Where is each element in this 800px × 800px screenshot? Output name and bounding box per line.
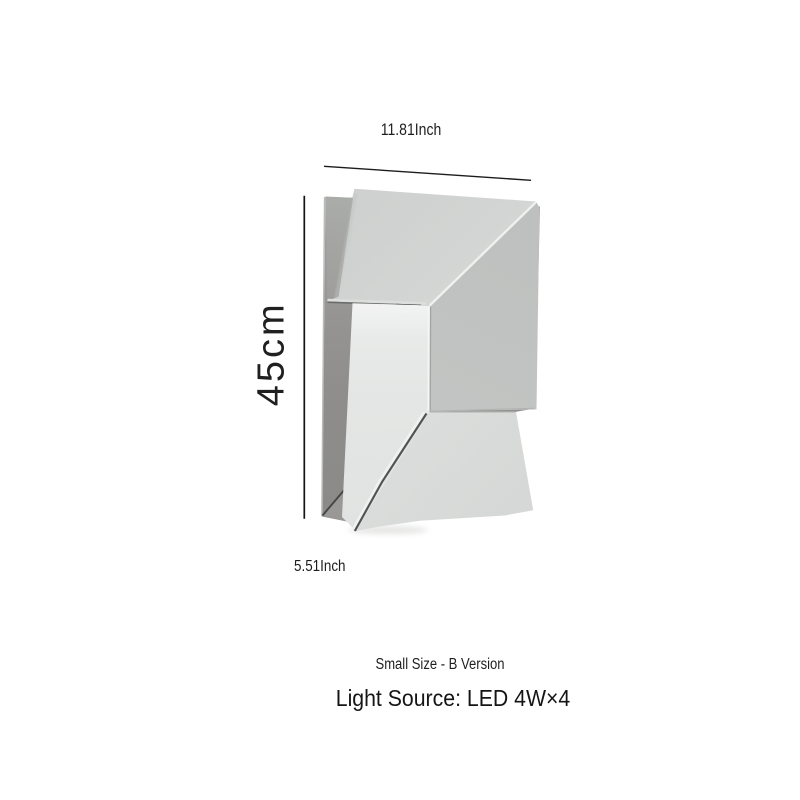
svg-text:45cm: 45cm bbox=[251, 304, 293, 406]
svg-text:11.81Inch: 11.81Inch bbox=[381, 120, 442, 139]
svg-text:Light Source: LED 4W×4: Light Source: LED 4W×4 bbox=[336, 685, 571, 711]
svg-text:Small Size - B Version: Small Size - B Version bbox=[376, 656, 505, 673]
svg-text:5.51Inch: 5.51Inch bbox=[294, 558, 346, 575]
